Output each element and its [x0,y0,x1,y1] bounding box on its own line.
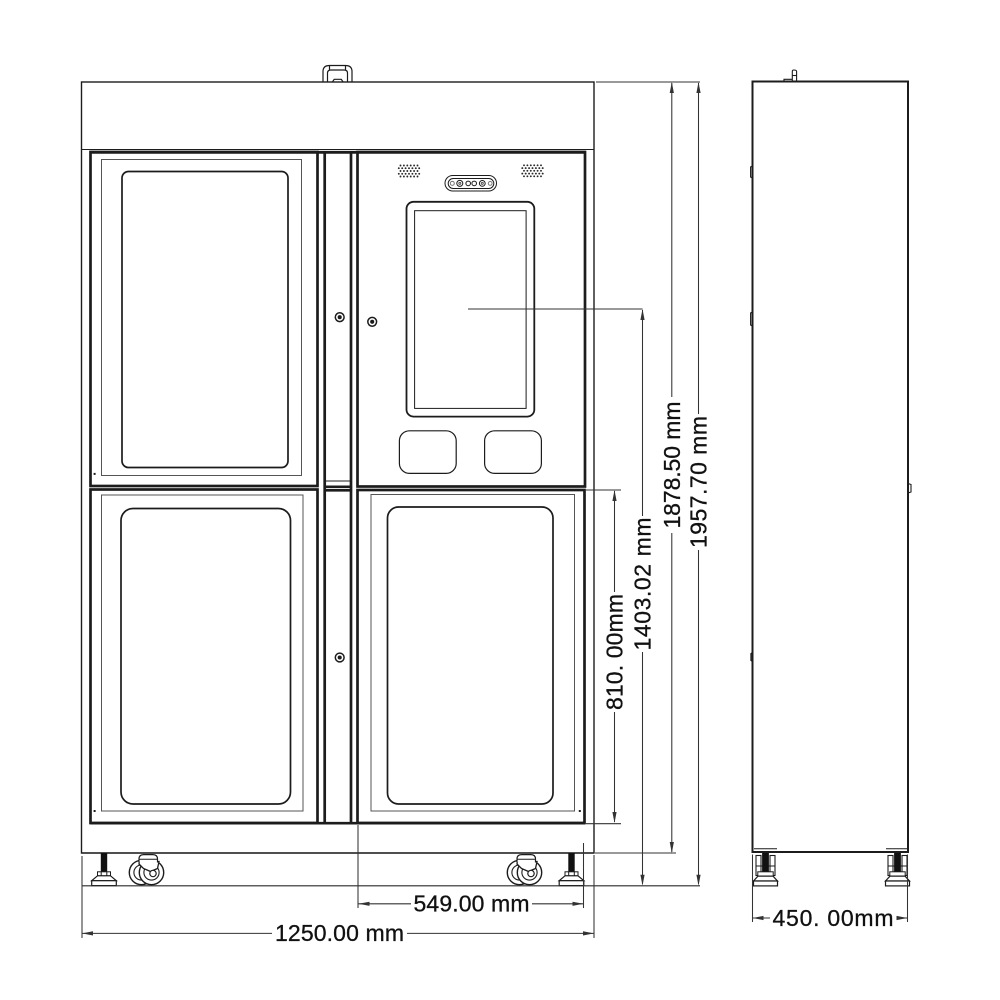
svg-text:450. 00mm: 450. 00mm [773,905,894,931]
svg-text:549.00 mm: 549.00 mm [414,891,530,917]
svg-text:1878.50 mm: 1878.50 mm [659,402,685,529]
svg-text:810. 00mm: 810. 00mm [602,594,628,710]
svg-text:1957.70 mm: 1957.70 mm [686,416,712,548]
svg-text:1403.02 mm: 1403.02 mm [630,518,656,651]
svg-text:1250.00 mm: 1250.00 mm [275,920,404,946]
